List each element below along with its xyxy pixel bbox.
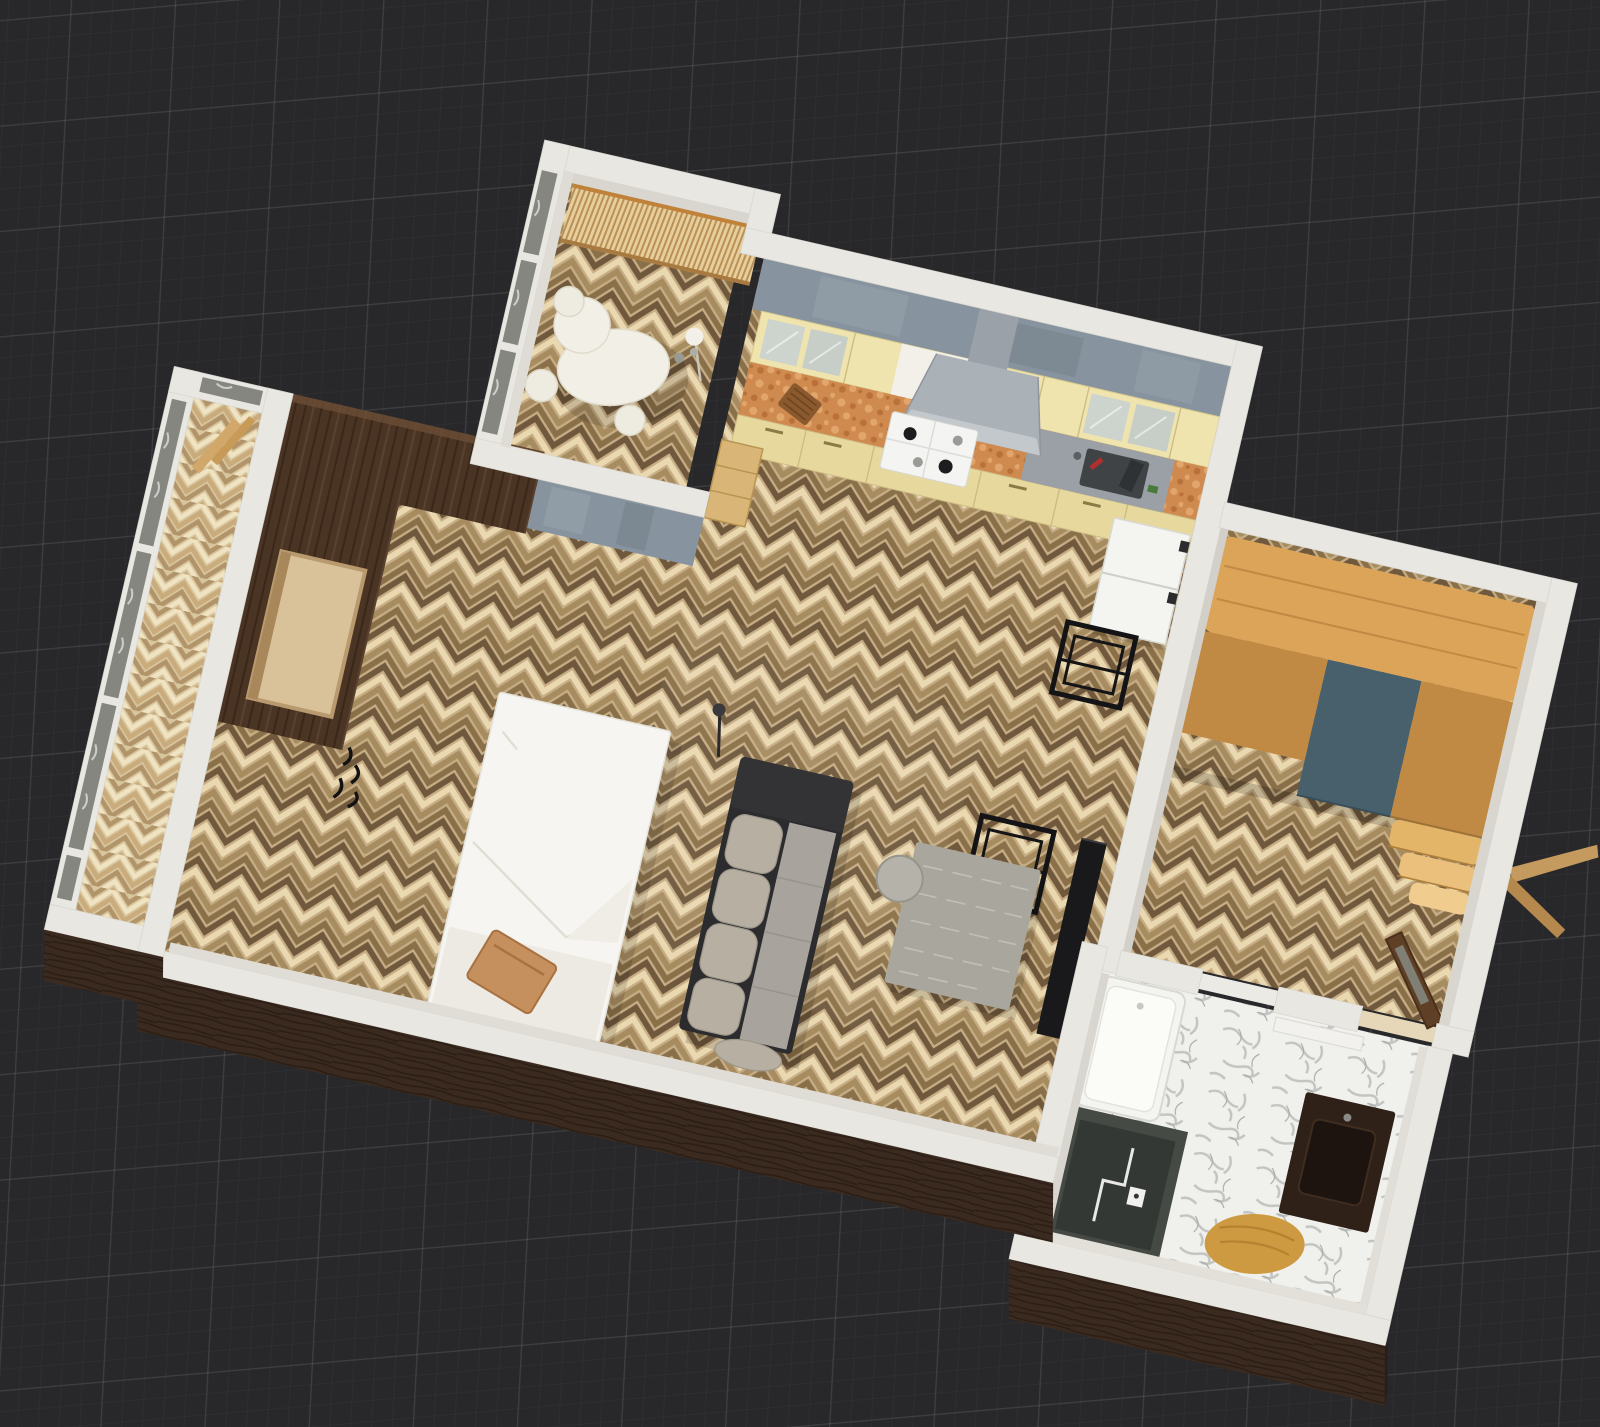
floorplan-viewport[interactable] [0,0,1600,1427]
apartment[interactable] [8,70,1600,1424]
floorplan-canvas[interactable] [0,0,1600,1427]
